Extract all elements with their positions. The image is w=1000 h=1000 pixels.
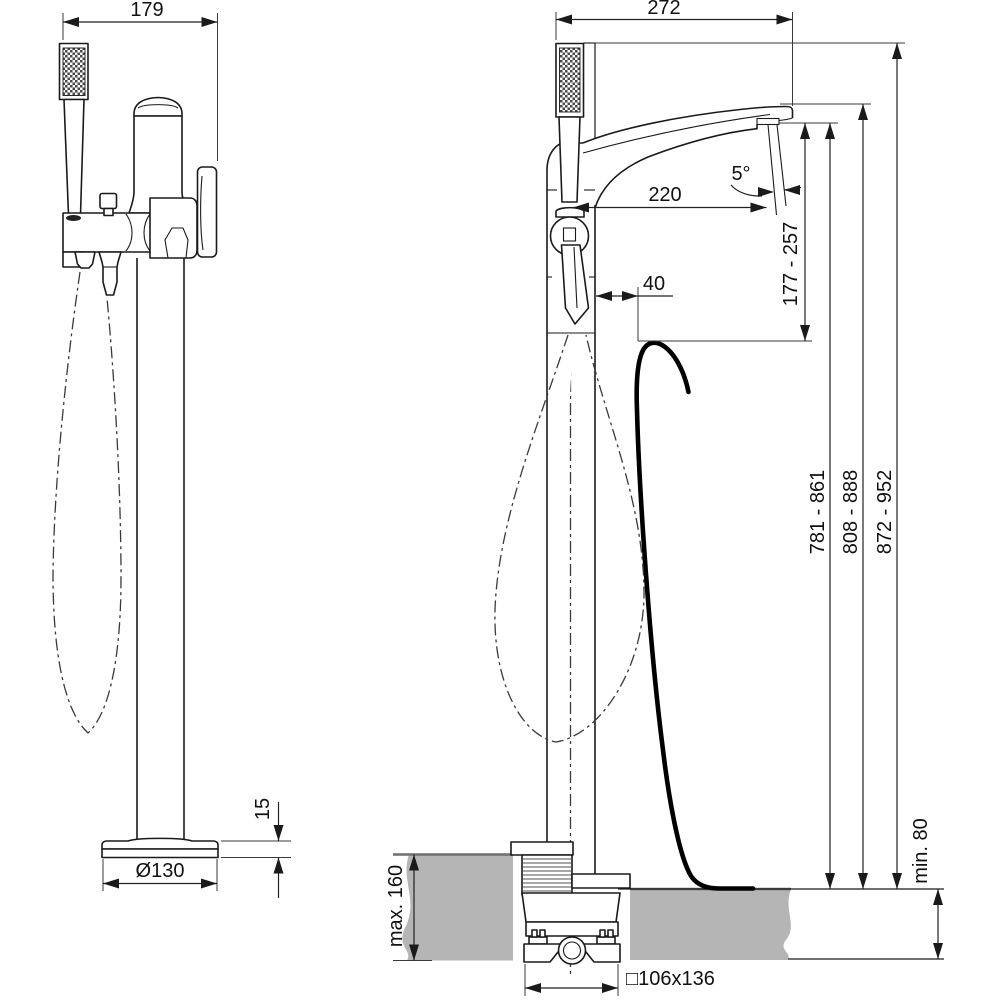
mounting-cover-plate-max xyxy=(511,842,573,855)
dim-base-diameter: Ø130 xyxy=(103,859,217,891)
dim-label-overall-height: 872 - 952 xyxy=(874,470,896,555)
handshower-holder-socket xyxy=(66,215,81,221)
riser-column-front xyxy=(137,258,184,841)
floor-min-section xyxy=(630,889,791,960)
handshower-spray-face xyxy=(63,48,85,96)
dim-label-floor-min: min. 80 xyxy=(910,818,932,884)
dim-floor-max: max. 160 xyxy=(385,855,419,961)
mixer-body-front xyxy=(63,98,217,296)
dim-outlet-height: 781 - 861 xyxy=(807,123,835,889)
dim-label-rough-in: □106x136 xyxy=(626,968,715,990)
dim-label-base-height: 15 xyxy=(252,798,274,820)
floor-sections xyxy=(393,855,944,961)
supply-connection-port xyxy=(559,937,586,964)
dim-label-spout-top-height: 808 - 888 xyxy=(840,470,862,555)
dim-spout-angle: 5° xyxy=(731,163,801,197)
mounting-cover-plate-min xyxy=(572,874,630,888)
anchor-bolt-left xyxy=(529,937,547,944)
dim-side-depth: 272 xyxy=(556,0,793,106)
technical-drawing-page: 179 15 Ø130 xyxy=(0,0,1000,1000)
dim-label-spout-reach: 220 xyxy=(648,184,681,206)
dim-rough-in: □106x136 xyxy=(525,964,715,996)
water-stream-line-2 xyxy=(777,125,786,207)
base-plate xyxy=(102,838,218,857)
handshower-hose-side xyxy=(637,343,753,889)
bath-mixer-dimension-drawing: 179 15 Ø130 xyxy=(0,0,1000,1000)
water-stream-line xyxy=(768,125,777,216)
dim-label-floor-max: max. 160 xyxy=(385,865,407,947)
dim-hose-offset: 40 xyxy=(596,273,673,341)
dim-label-outlet-to-rim: 177 - 257 xyxy=(780,222,802,307)
dim-label-front-width: 179 xyxy=(130,0,163,21)
dim-outlet-to-rim: 177 - 257 xyxy=(779,123,838,341)
dim-label-side-depth: 272 xyxy=(647,0,680,19)
dim-label-outlet-height: 781 - 861 xyxy=(807,470,829,555)
dim-label-spout-angle: 5° xyxy=(731,163,750,185)
handshower-front xyxy=(60,44,89,232)
side-view: 272 220 5° 40 xyxy=(385,0,944,996)
diverter-knob xyxy=(100,194,117,209)
floor-mounting-kit xyxy=(511,842,630,964)
dim-label-hose-offset: 40 xyxy=(643,273,665,295)
dim-base-height: 15 xyxy=(221,798,291,898)
handshower-spray-face-side xyxy=(560,48,581,112)
handshower-hose-loop-front xyxy=(53,272,121,733)
spout xyxy=(583,107,793,216)
dim-label-base-diameter: Ø130 xyxy=(136,860,185,882)
front-view: 179 15 Ø130 xyxy=(53,0,291,898)
anchor-bolt-right xyxy=(597,937,615,944)
